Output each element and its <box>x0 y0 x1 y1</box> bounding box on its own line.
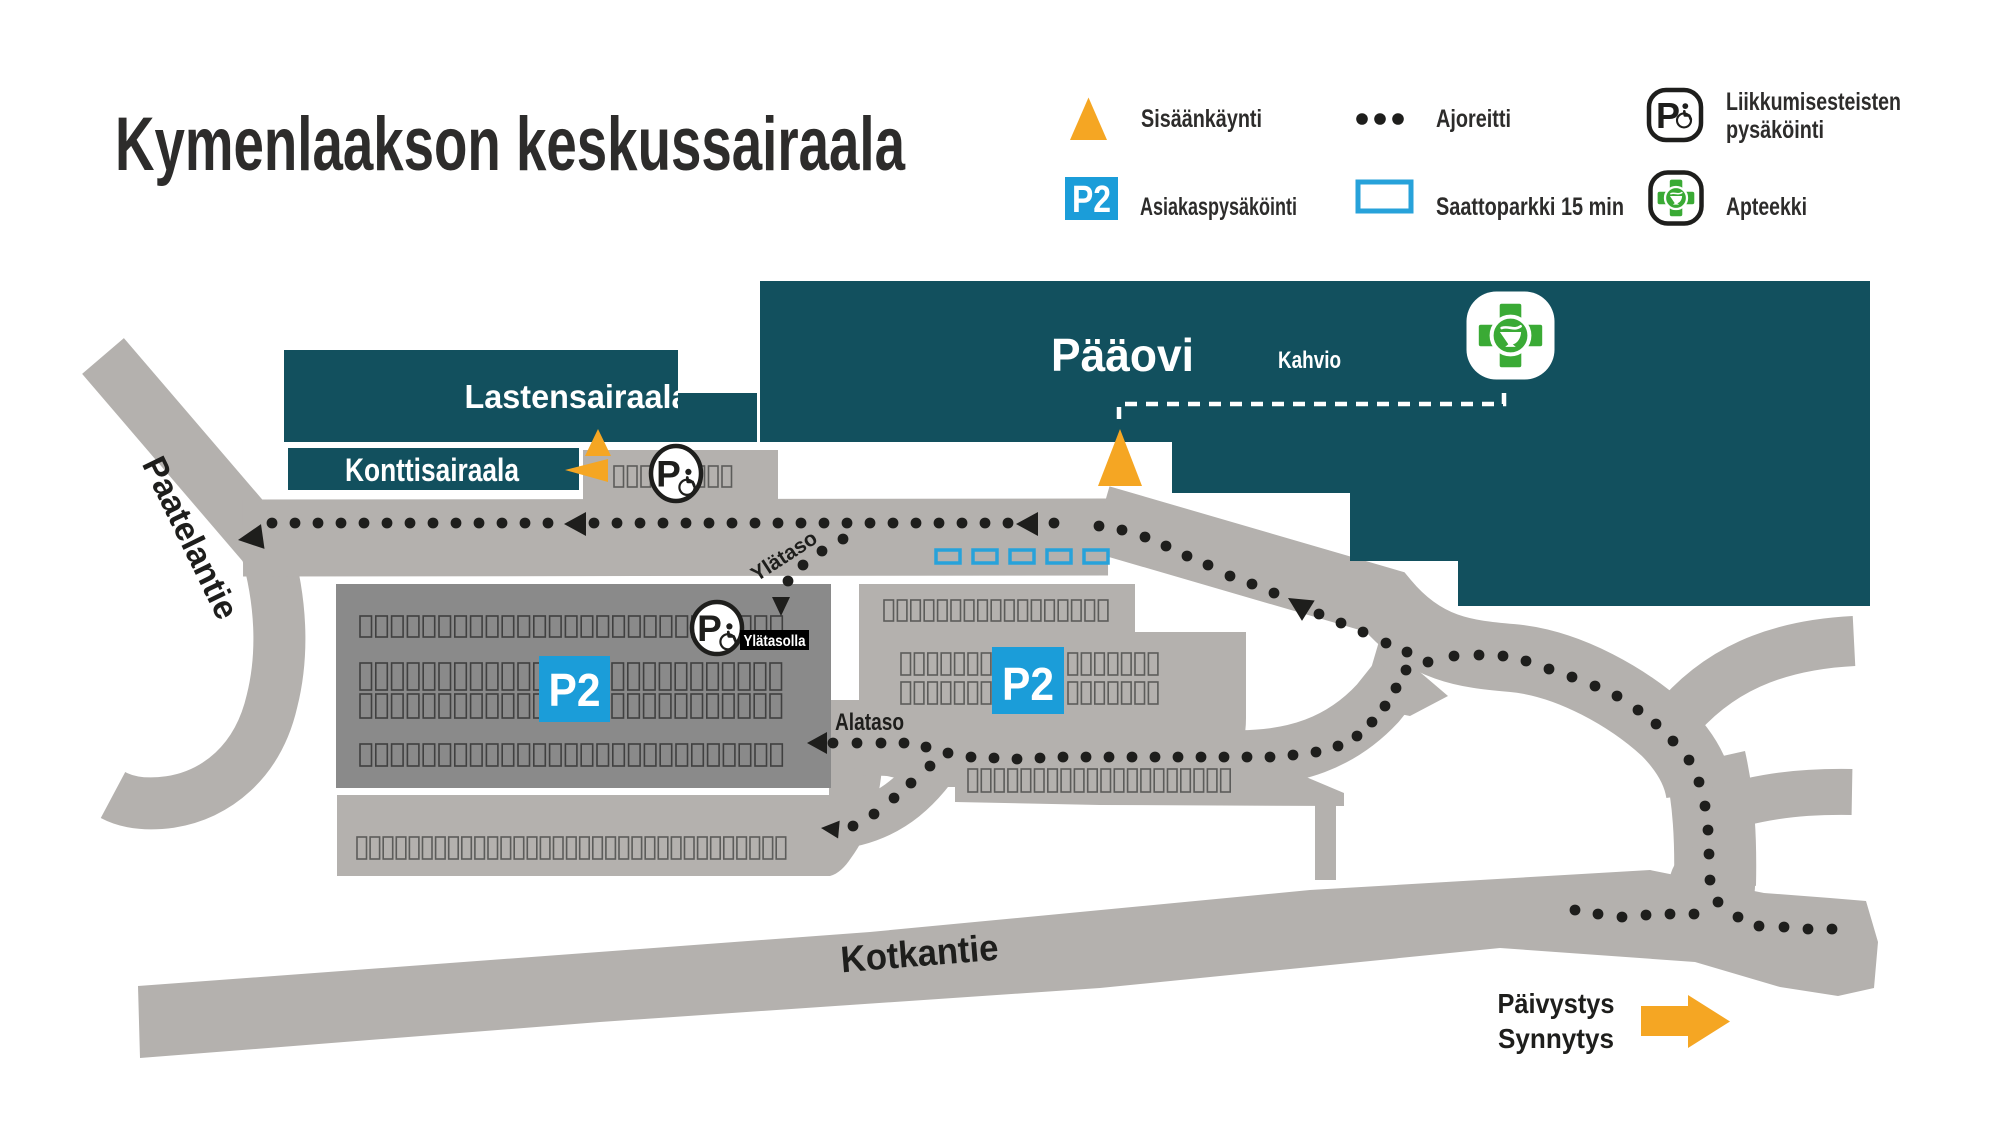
svg-text:P: P <box>656 454 681 495</box>
svg-text:Kahvio: Kahvio <box>1278 347 1341 374</box>
svg-text:Liikkumisesteisten: Liikkumisesteisten <box>1726 88 1901 116</box>
svg-text:Synnytys: Synnytys <box>1498 1023 1614 1054</box>
svg-text:P2: P2 <box>1072 179 1111 221</box>
svg-text:Saattoparkki 15 min: Saattoparkki 15 min <box>1436 193 1624 221</box>
svg-text:P: P <box>697 608 722 649</box>
svg-text:Alataso: Alataso <box>835 709 904 736</box>
svg-text:Ylätasolla: Ylätasolla <box>744 633 806 650</box>
svg-text:Päivystys: Päivystys <box>1498 988 1615 1019</box>
svg-text:Kymenlaakson keskussairaala: Kymenlaakson keskussairaala <box>115 102 906 187</box>
svg-text:P2: P2 <box>549 664 601 716</box>
svg-text:Konttisairaala: Konttisairaala <box>345 452 519 488</box>
svg-text:Apteekki: Apteekki <box>1726 193 1807 221</box>
svg-text:pysäköinti: pysäköinti <box>1726 116 1824 144</box>
svg-text:P2: P2 <box>1002 658 1054 710</box>
svg-text:P: P <box>1656 95 1680 136</box>
svg-text:Pääovi: Pääovi <box>1051 329 1194 381</box>
svg-text:Sisäänkäynti: Sisäänkäynti <box>1141 105 1262 133</box>
svg-text:Asiakaspysäköinti: Asiakaspysäköinti <box>1140 193 1297 221</box>
svg-text:Lastensairaala: Lastensairaala <box>465 378 691 415</box>
svg-text:Ajoreitti: Ajoreitti <box>1436 105 1511 133</box>
